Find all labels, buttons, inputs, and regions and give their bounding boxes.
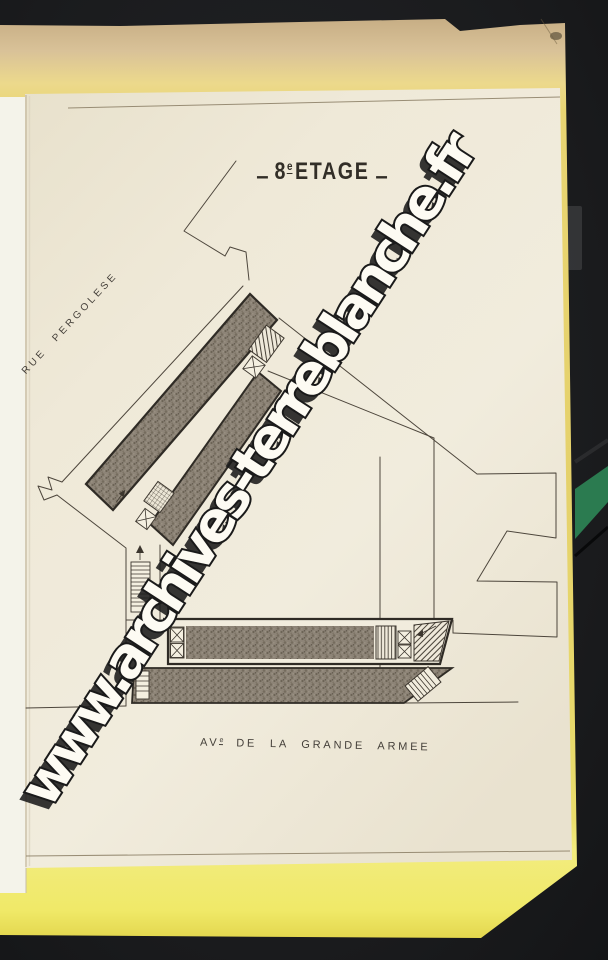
scanned-archive-page: ‒8eETAGE‒ RUE PERGOLESE AVe DE LA GRANDE… <box>0 0 608 960</box>
title-dash-left: ‒ <box>257 163 268 190</box>
avenue-ordinal: e <box>219 737 223 745</box>
title-floor-ordinal: e <box>287 159 292 174</box>
background-details <box>566 206 608 556</box>
avenue-front-strip <box>132 668 452 703</box>
title-dash-right: ‒ <box>376 163 387 190</box>
stair-symbol-small <box>133 626 142 651</box>
avenue-abbrev: AV <box>200 737 220 749</box>
underlying-page <box>0 97 26 893</box>
title-floor-word: ETAGE <box>295 158 370 185</box>
green-stripe <box>575 466 608 539</box>
title-floor-number: 8 <box>274 158 287 185</box>
background-reflection <box>566 206 582 270</box>
page-title: ‒8eETAGE‒ <box>240 158 404 186</box>
floor-plan-drawing <box>0 0 608 960</box>
background-fold-line <box>575 440 608 462</box>
